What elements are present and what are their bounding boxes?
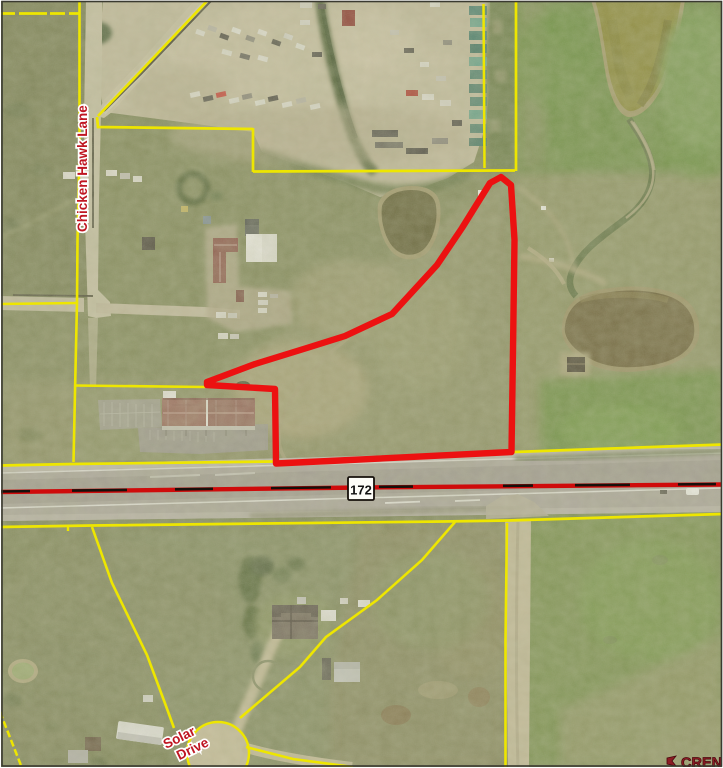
- svg-text:172: 172: [350, 483, 372, 498]
- svg-text:Chicken Hawk Lane: Chicken Hawk Lane: [75, 105, 90, 232]
